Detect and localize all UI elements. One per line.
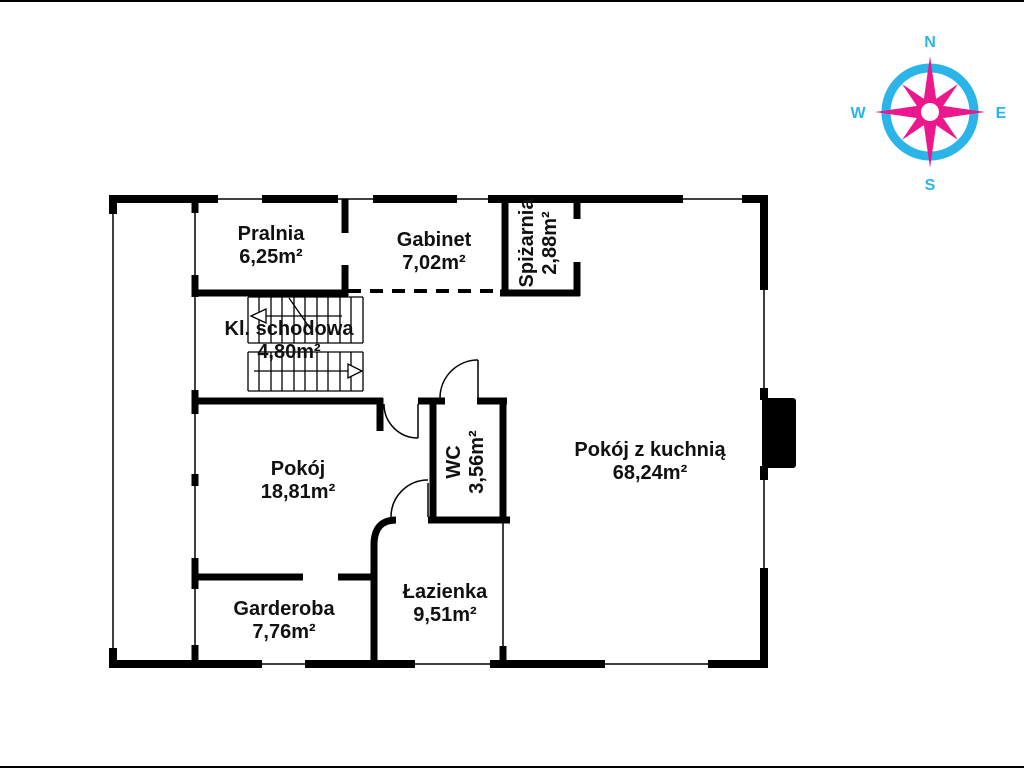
room-label-kl-schodowa: Kl. schodowa 4,80m² (225, 318, 354, 364)
compass-north-label: N (924, 34, 936, 51)
room-label-lazienka: Łazienka 9,51m² (403, 581, 487, 627)
room-label-gabinet: Gabinet 7,02m² (397, 229, 471, 275)
room-name: Spiżarnia (516, 199, 539, 288)
compass-south-label: S (925, 177, 936, 194)
compass-east-label: E (996, 105, 1007, 122)
room-label-pralnia: Pralnia 6,25m² (238, 223, 305, 269)
floor-plan-drawing: N S W E (0, 0, 1024, 768)
room-area: 68,24m² (574, 462, 725, 485)
room-area: 4,80m² (225, 341, 354, 364)
room-area: 7,76m² (233, 621, 334, 644)
floor-plan-page: N S W E Pralnia 6,25m² Gabinet 7,02m² Sp… (0, 0, 1024, 768)
room-name: Pralnia (238, 223, 305, 246)
room-area: 2,88m² (539, 199, 562, 288)
room-name: WC (443, 430, 466, 493)
room-area: 7,02m² (397, 252, 471, 275)
room-name: Garderoba (233, 598, 334, 621)
room-name: Gabinet (397, 229, 471, 252)
chimney-block (762, 398, 796, 468)
room-area: 3,56m² (466, 430, 489, 493)
room-name: Pokój (261, 458, 336, 481)
compass-west-label: W (850, 105, 866, 122)
room-label-pokoj: Pokój 18,81m² (261, 458, 336, 504)
room-label-garderoba: Garderoba 7,76m² (233, 598, 334, 644)
room-label-wc: WC 3,56m² (443, 430, 489, 493)
room-name: Łazienka (403, 581, 487, 604)
room-area: 18,81m² (261, 481, 336, 504)
room-name: Kl. schodowa (225, 318, 354, 341)
room-area: 6,25m² (238, 246, 305, 269)
room-name: Pokój z kuchnią (574, 439, 725, 462)
compass-rose-icon: N S W E (850, 34, 1006, 194)
compass-hub (921, 103, 939, 121)
room-area: 9,51m² (403, 604, 487, 627)
room-label-pokoj-z-kuchnia: Pokój z kuchnią 68,24m² (574, 439, 725, 485)
room-label-spizarnia: Spiżarnia 2,88m² (516, 199, 562, 288)
